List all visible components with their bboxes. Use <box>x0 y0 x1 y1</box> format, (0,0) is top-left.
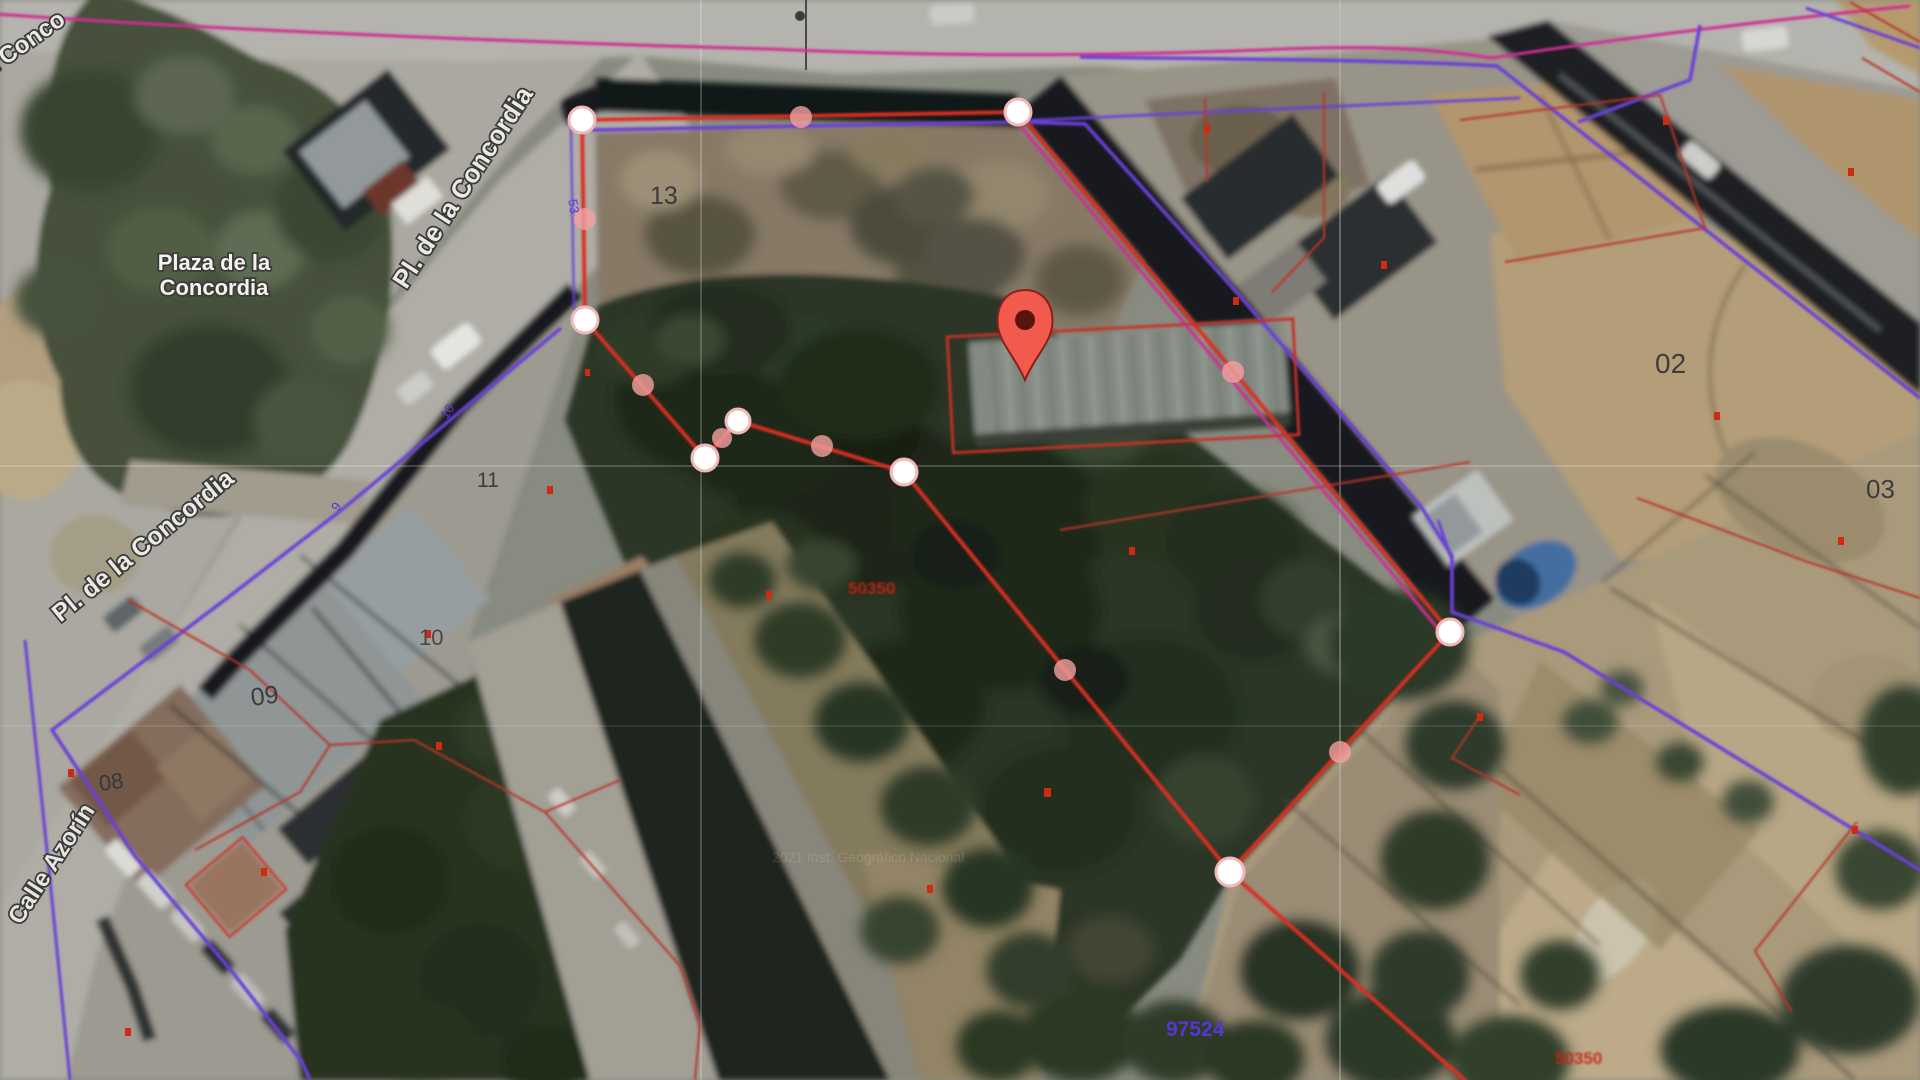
svg-text:Plaza de la: Plaza de la <box>158 250 271 275</box>
svg-text:53: 53 <box>565 198 582 215</box>
svg-text:50350: 50350 <box>848 579 895 598</box>
svg-text:50350: 50350 <box>1555 1049 1602 1068</box>
svg-text:02: 02 <box>1655 348 1686 379</box>
svg-text:13: 13 <box>650 182 678 210</box>
svg-text:09: 09 <box>249 680 280 712</box>
svg-text:10: 10 <box>419 625 443 650</box>
svg-text:03: 03 <box>1866 474 1895 504</box>
svg-text:97524: 97524 <box>1166 1018 1225 1041</box>
svg-text:Concordia: Concordia <box>160 275 270 300</box>
svg-text:2021 Inst. Geográfico Nacional: 2021 Inst. Geográfico Nacional <box>772 849 964 865</box>
svg-text:11: 11 <box>477 469 499 492</box>
svg-text:08: 08 <box>97 768 125 796</box>
